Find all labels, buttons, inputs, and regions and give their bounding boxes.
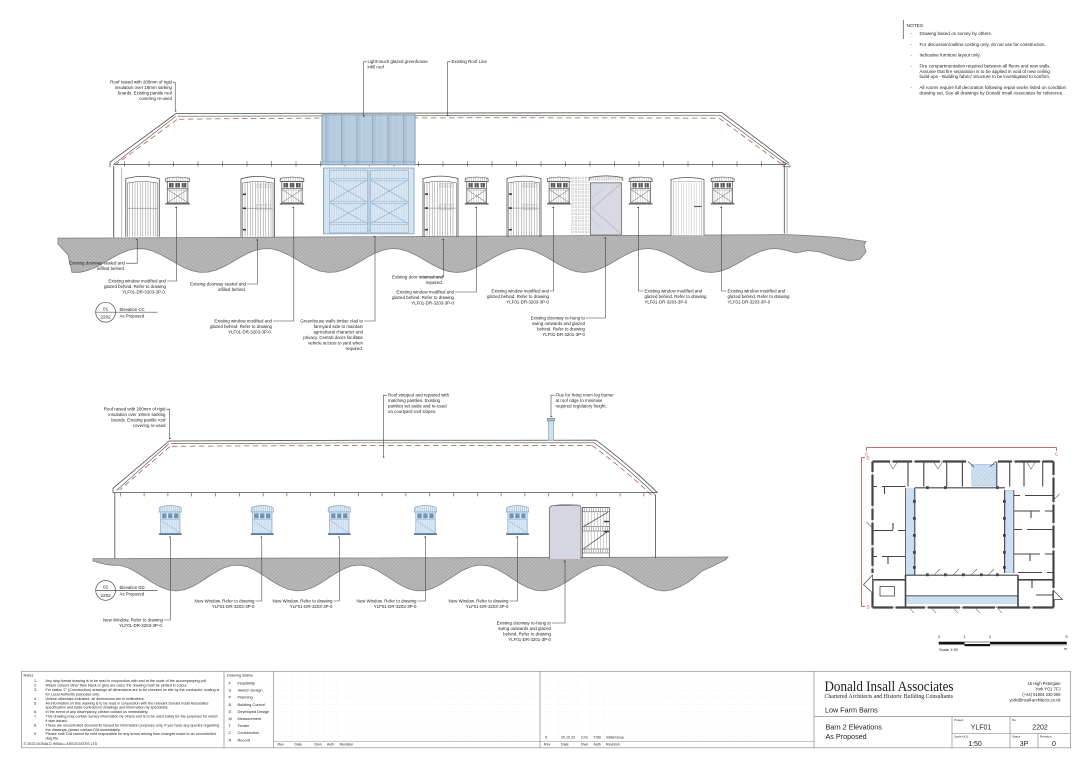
svg-text:Assume that fire separation is: Assume that fire separation is to be app… [920,69,1051,74]
svg-text:5.: 5. [34,701,37,705]
svg-text:D: D [229,709,232,714]
svg-text:These are uncontrolled documen: These are uncontrolled documents issued … [46,723,220,727]
svg-text:infilled behind.: infilled behind. [97,266,125,271]
svg-text:As Proposed: As Proposed [826,732,867,741]
svg-text:For status 'C' (Construction): For status 'C' (Construction) drawings a… [46,688,220,692]
svg-text:Measurement: Measurement [238,716,263,721]
svg-text:2.: 2. [34,684,37,688]
svg-text:7.: 7. [34,715,37,719]
svg-text:insulation over 18mm sarking: insulation over 18mm sarking [108,412,166,417]
svg-text:Initial Issue: Initial Issue [606,736,624,740]
svg-text:Revision: Revision [1040,735,1052,739]
svg-text:D: D [867,455,870,460]
svg-text:4.: 4. [34,697,37,701]
svg-text:Existing window modified and: Existing window modified and [396,289,454,294]
svg-text:glazed behind. Refer to drawin: glazed behind. Refer to drawing [645,294,708,299]
svg-text:for Local Authority purposes o: for Local Authority purposes only. [46,692,100,696]
svg-text:Date: Date [561,742,569,746]
svg-text:B: B [229,702,232,707]
svg-text:New Window. Refer to drawing: New Window. Refer to drawing [356,598,417,603]
svg-text:Notes: Notes [24,674,34,678]
svg-text:YLF01-DR-3203-3P-0: YLF01-DR-3203-3P-0 [506,299,549,304]
svg-text:Unless otherwise indicated, al: Unless otherwise indicated, all dimensio… [46,697,145,701]
svg-text:m: m [1064,647,1067,651]
svg-text:© 2023 DONALD INSALL ASSOCIATE: © 2023 DONALD INSALL ASSOCIATES LTD [24,742,98,746]
svg-text:Scale 1:50: Scale 1:50 [939,647,959,652]
svg-text:Building Control: Building Control [238,702,266,707]
svg-text:New Window. Refer to drawing: New Window. Refer to drawing [272,598,333,603]
svg-text:Revision: Revision [340,742,354,746]
svg-text:Project: Project [954,718,964,722]
svg-text:In the event of any discrepanc: In the event of any discrepancy, please … [46,710,149,714]
svg-text:15 High Petergate: 15 High Petergate [1028,681,1062,686]
svg-text:YLF01-DR-3201-3P-0: YLF01-DR-3201-3P-0 [542,332,585,337]
svg-text:(+44) 01904 230 069: (+44) 01904 230 069 [1022,692,1061,697]
svg-text:Please note DIA cannot be held: Please note DIA cannot be held responsib… [46,732,216,736]
svg-text:Any dwg format drawing is to b: Any dwg format drawing is to be read in … [46,679,207,683]
svg-text:YLF01-DR-3203-3P-0: YLF01-DR-3203-3P-0 [212,604,255,609]
svg-text:YLF01: YLF01 [971,724,992,731]
svg-text:the drawings, please contact D: the drawings, please contact DIA immedia… [46,728,121,732]
svg-text:6.: 6. [34,710,37,714]
svg-text:dwg file.: dwg file. [46,737,60,741]
svg-text:Elevation CC: Elevation CC [120,307,145,312]
svg-text:Roof raised with 200mm of rigi: Roof raised with 200mm of rigid [110,80,172,85]
svg-text:glazed behind. Refer to drawin: glazed behind. Refer to drawing [104,284,167,289]
svg-text:Scale (A1): Scale (A1) [954,735,968,739]
svg-text:01: 01 [103,306,109,311]
svg-text:Dwn: Dwn [581,742,588,746]
svg-text:YLF01-DR-3203-3P-0.: YLF01-DR-3203-3P-0. [122,289,166,294]
svg-text:pantiles set aside and re-used: pantiles set aside and re-used [388,404,447,409]
svg-text:vehicle access to yard when: vehicle access to yard when [308,340,363,345]
svg-text:1.: 1. [34,679,37,683]
svg-text:Elevation DD: Elevation DD [120,585,145,590]
svg-text:C: C [1055,452,1058,457]
svg-text:Drawing based on survey by oth: Drawing based on survey by others. [920,31,993,36]
svg-text:Barn 2 Elevations: Barn 2 Elevations [826,723,883,732]
svg-text:infilled behind.: infilled behind. [218,287,246,292]
svg-text:Light-touch glazed greenhouse: Light-touch glazed greenhouse [368,59,429,64]
svg-text:New Window. Refer to drawing: New Window. Refer to drawing [103,617,164,622]
svg-text:glazed behind. Refer to drawin: glazed behind. Refer to drawing [210,324,273,329]
svg-text:3.: 3. [34,688,37,692]
svg-text:boards. Existing pantile roof: boards. Existing pantile roof [118,91,173,96]
svg-text:2202: 2202 [1032,724,1048,731]
svg-text:required.: required. [346,346,363,351]
svg-text:repaired.: repaired. [426,280,443,285]
svg-text:New Window. Refer to drawing: New Window. Refer to drawing [194,598,255,603]
svg-text:M: M [229,716,232,721]
svg-text:Existing Roof Line: Existing Roof Line [452,59,488,64]
svg-text:D: D [867,604,870,609]
svg-text:0: 0 [938,634,941,639]
svg-text:YLF01-DR-3203-3P-0.: YLF01-DR-3203-3P-0. [228,329,272,334]
svg-text:3P: 3P [1020,741,1029,748]
svg-text:swing outwards and glazed: swing outwards and glazed [498,626,552,631]
svg-text:P: P [229,695,232,700]
svg-text:1:50: 1:50 [968,741,982,748]
svg-text:infill roof: infill roof [368,65,385,70]
svg-text:Record: Record [238,737,251,742]
svg-text:Dwn: Dwn [315,742,322,746]
svg-text:on courtyard roof slopes.: on courtyard roof slopes. [388,409,436,414]
svg-text:T: T [229,723,232,728]
svg-text:YLF01-DR-3203-3P-0: YLF01-DR-3203-3P-0 [374,604,417,609]
svg-text:R: R [229,737,232,742]
svg-text:york@insall-architects.co.uk: york@insall-architects.co.uk [1009,698,1061,703]
svg-text:YLF01-DR-3203-3P-0: YLF01-DR-3203-3P-0 [290,604,333,609]
svg-text:YLF01-DR-3203-3P-0: YLF01-DR-3203-3P-0 [645,299,688,304]
svg-text:Existing window modified and: Existing window modified and [645,288,703,293]
svg-text:Construction: Construction [238,730,260,735]
svg-text:2: 2 [989,634,992,639]
svg-text:Existing doorway re-hung to: Existing doorway re-hung to [497,620,552,625]
svg-text:Indicative furniture layout on: Indicative furniture layout only. [920,53,981,58]
svg-text:-: - [911,63,913,68]
svg-text:-: - [911,53,913,58]
svg-text:YLF01-DR-3201-3P-0: YLF01-DR-3201-3P-0 [508,637,551,642]
svg-text:Sketch Design: Sketch Design [238,688,263,693]
svg-text:Existing doorway sealed and: Existing doorway sealed and [190,281,246,286]
svg-text:Flue for living room log burne: Flue for living room log burner [556,393,615,398]
svg-text:Donald Insall Associates: Donald Insall Associates [825,679,954,695]
svg-text:Existing window modified and: Existing window modified and [214,318,272,323]
svg-text:Rev: Rev [544,742,551,746]
svg-text:boards. Existing pantile roof: boards. Existing pantile roof [111,418,166,423]
svg-text:YLF01-DR-3203-3P-0.: YLF01-DR-3203-3P-0. [119,623,163,628]
svg-text:2202: 2202 [100,315,111,320]
svg-text:As Proposed: As Proposed [120,313,145,318]
svg-text:insulation over 18mm sarking: insulation over 18mm sarking [115,85,173,90]
svg-text:9.: 9. [34,732,37,736]
svg-text:20.10.23: 20.10.23 [561,736,575,740]
svg-text:-: - [911,85,913,90]
svg-text:Roof raised with 200mm of rigi: Roof raised with 200mm of rigid [104,407,166,412]
svg-text:New Window. Refer to drawing: New Window. Refer to drawing [448,598,509,603]
svg-text:drawing set. See all drawings: drawing set. See all drawings by Donald … [920,91,1064,96]
svg-text:Planning: Planning [238,695,253,700]
svg-text:NOTES: NOTES [907,23,924,29]
svg-text:YLF01-DR-3203-3P-0: YLF01-DR-3203-3P-0 [466,604,509,609]
svg-text:Rev: Rev [278,742,285,746]
svg-text:C: C [229,730,232,735]
svg-text:required regulatory height.: required regulatory height. [556,404,607,409]
svg-text:Feasibility: Feasibility [238,681,255,686]
svg-text:8.: 8. [34,723,37,727]
svg-text:No: No [1012,718,1016,722]
svg-text:Auth: Auth [327,742,334,746]
svg-text:agricultural character and: agricultural character and [313,329,363,334]
svg-text:This drawing may contain surve: This drawing may contain survey informat… [46,715,218,719]
svg-text:YLF01-DR-3203-3P-0: YLF01-DR-3203-3P-0 [411,300,454,305]
svg-text:glazed behind. Refer to drawin: glazed behind. Refer to drawing [728,294,791,299]
svg-text:Chartered Architects and Histo: Chartered Architects and Historic Buildi… [825,694,954,700]
svg-text:Fire compartmentation required: Fire compartmentation required between a… [920,63,1051,68]
svg-text:All rooms require full decorat: All rooms require full decoration follow… [920,85,1067,90]
svg-text:Date: Date [295,742,303,746]
svg-text:swing outwards and glazed: swing outwards and glazed [532,321,586,326]
svg-text:Existing doorway re-hung to: Existing doorway re-hung to [531,315,586,320]
svg-text:matching pantiles. Existing: matching pantiles. Existing [388,398,441,403]
svg-text:farmyard side to maintain: farmyard side to maintain [314,324,364,329]
svg-text:Status: Status [1012,735,1021,739]
svg-text:at roof ridge to minimise: at roof ridge to minimise [556,398,603,403]
svg-text:As Proposed: As Proposed [120,592,145,597]
svg-text:behind. Refer to drawing: behind. Refer to drawing [503,631,551,636]
svg-text:-: - [911,31,913,36]
svg-text:-: - [911,42,913,47]
svg-text:All information on this drawin: All information on this drawing is to be… [46,701,209,705]
svg-text:privacy. Central doors facilit: privacy. Central doors facilitate [303,335,363,340]
svg-text:Existing window modified and: Existing window modified and [491,288,549,293]
svg-text:CJS: CJS [581,736,588,740]
svg-text:Existing window modified and: Existing window modified and [108,278,166,283]
svg-text:Low Farm Barns: Low Farm Barns [825,706,878,715]
svg-text:build-ups - Building fabric/ s: build-ups - Building fabric/ structure t… [920,74,1051,79]
svg-text:S: S [229,688,232,693]
svg-text:it was issued.: it was issued. [46,719,68,723]
svg-text:York YO1 7FJ: York YO1 7FJ [1035,687,1060,692]
svg-text:TOB: TOB [594,736,602,740]
svg-text:Auth: Auth [594,742,601,746]
svg-text:glazed behind. Refer to drawin: glazed behind. Refer to drawing [392,295,455,300]
svg-text:specification and trade contra: specification and trade contractors' dra… [46,706,169,710]
svg-text:Revision: Revision [606,742,620,746]
svg-text:1: 1 [963,634,966,639]
svg-text:Existing doorway sealed and: Existing doorway sealed and [69,261,125,266]
svg-text:Tender: Tender [238,723,251,728]
svg-text:02: 02 [103,585,109,590]
svg-text:For discussion/outline costing: For discussion/outline costing only, do … [920,42,1046,47]
svg-text:covering re-used: covering re-used [133,423,166,428]
svg-text:2202: 2202 [100,593,111,598]
svg-text:5: 5 [1065,634,1068,639]
svg-text:covering re-used: covering re-used [139,96,172,101]
svg-text:F: F [229,681,232,686]
svg-text:Developed Design: Developed Design [238,709,270,714]
svg-text:Roof stripped and repaired wit: Roof stripped and repaired with [388,393,450,398]
svg-text:glazed behind. Refer to drawin: glazed behind. Refer to drawing [487,294,550,299]
svg-text:S: S [545,736,548,740]
svg-text:Where colours other than black: Where colours other than black or grey a… [46,684,188,688]
svg-text:Drawing Status: Drawing Status [227,674,253,678]
svg-text:0: 0 [1052,741,1056,748]
svg-text:Greenhouse walls timber clad t: Greenhouse walls timber clad to [300,318,363,323]
svg-text:YLF01-DR-3203-3P-0: YLF01-DR-3203-3P-0 [728,299,771,304]
svg-text:behind. Refer to drawing: behind. Refer to drawing [537,326,585,331]
svg-text:Existing window modified and: Existing window modified and [728,288,786,293]
